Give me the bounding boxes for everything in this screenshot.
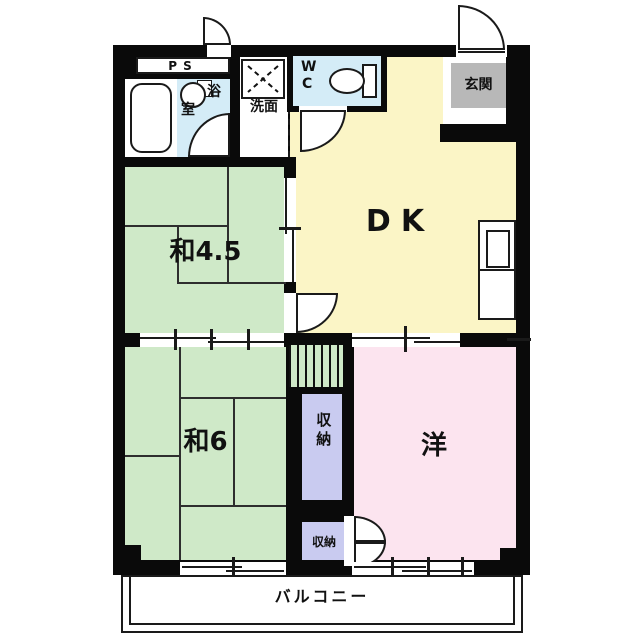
genkan-label: 玄関 <box>451 77 506 93</box>
storage-lower-label: 収納 <box>302 536 346 550</box>
slide-45-6-line-b <box>208 341 284 343</box>
wall-left <box>113 45 125 575</box>
slide-45-6-line-a <box>140 337 216 339</box>
window-line <box>354 566 426 568</box>
wall-genkan-right-fill <box>506 57 516 124</box>
washing-machine-box <box>241 59 285 99</box>
balcony-label: バルコニー <box>129 588 515 606</box>
slide-dk-western-line-b <box>414 341 460 343</box>
grid-tick <box>404 326 407 352</box>
japanese-room-6-label: 和6 <box>125 428 286 458</box>
striped-closet-block <box>286 342 346 390</box>
japanese-room-4-5-label: 和4.5 <box>125 238 286 268</box>
grid-tick <box>247 329 250 350</box>
storage-upper-label: 収納 <box>314 412 331 450</box>
grid-tick <box>279 227 301 230</box>
kitchen-sink <box>486 230 510 268</box>
tatami-line <box>179 505 286 507</box>
entry-door-arc <box>458 5 505 50</box>
kitchen-counter-divider <box>478 269 516 271</box>
bathroom-label-2: 室 <box>181 102 195 118</box>
closet-door-opening <box>344 516 354 566</box>
wall-right <box>516 45 530 575</box>
slide-45-dk-line-b <box>292 230 294 282</box>
window-western <box>352 562 474 575</box>
washing-machine-icon <box>243 61 283 97</box>
wall-storage-mid <box>298 504 346 518</box>
slide-dk-western-line-a <box>352 337 430 339</box>
ps-door-opening <box>207 45 231 57</box>
storage-upper-box: 収納 <box>298 390 346 504</box>
washroom-label: 洗面 <box>240 99 288 115</box>
ps-door-arc <box>203 17 231 45</box>
floor-plan: PS 浴 室 洗面 W C 玄関 DK <box>0 0 640 640</box>
grid-tick <box>174 329 177 350</box>
bathroom-label-1: 浴 <box>207 84 221 100</box>
toilet-bowl-icon <box>329 68 365 94</box>
slide-45-dk-line-a <box>285 178 287 234</box>
dk-label: DK <box>300 205 490 240</box>
pipe-space-box: PS <box>136 57 230 74</box>
wall-jog-washitsu6 <box>125 545 141 560</box>
wall-band-left <box>113 333 140 347</box>
grid-tick <box>210 329 213 350</box>
door-45-dk-opening <box>284 293 296 333</box>
wall-genkan-bottom <box>440 124 516 142</box>
entry-threshold-line <box>458 51 505 53</box>
ps-label: PS <box>138 60 228 74</box>
grid-tick <box>507 338 531 341</box>
storage-lower-box: 収納 <box>298 518 350 564</box>
wall-jog-western <box>500 548 516 560</box>
wc-label-line2: C <box>302 76 312 92</box>
wc-label-line1: W <box>301 59 316 75</box>
western-room-label: 洋 <box>352 432 516 462</box>
washroom-dk-boundary-dashed <box>288 108 290 157</box>
bathtub-icon <box>130 83 172 153</box>
tatami-line <box>177 282 286 284</box>
genkan-strip-bottom <box>443 108 506 124</box>
